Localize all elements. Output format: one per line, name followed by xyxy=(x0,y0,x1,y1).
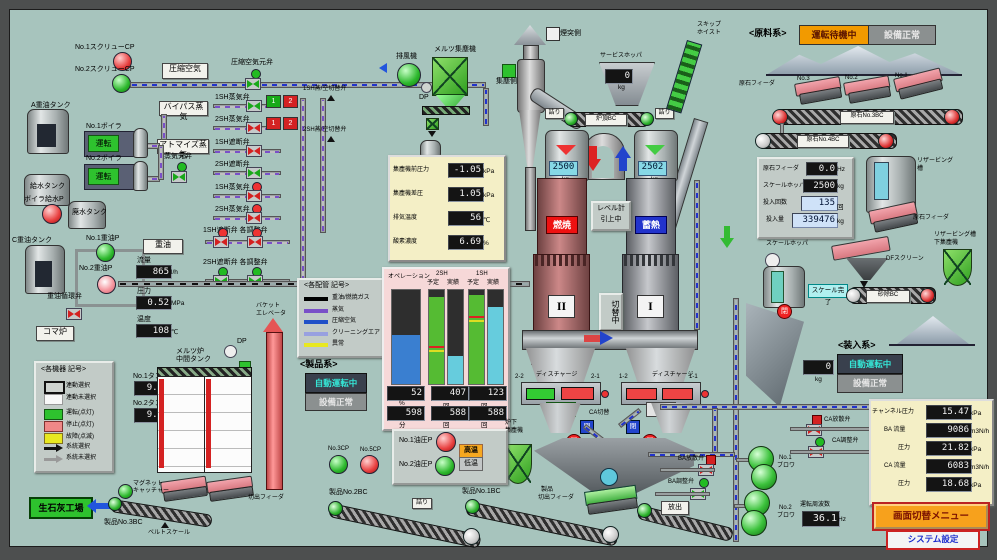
legend-nosys-arrow-head xyxy=(56,455,63,463)
skip-hoist-label1: スキップ xyxy=(697,22,721,29)
ba-adjust-valve-label: BA調整弁 xyxy=(668,479,694,486)
kiln2-number: II xyxy=(548,295,575,318)
pipe-legend-clean-swatch xyxy=(304,332,328,336)
charge-r4-label: 圧力 xyxy=(898,481,910,488)
legend-nosys-arrow xyxy=(44,458,56,461)
level-gauge-line2: 引上中 xyxy=(593,214,629,225)
sh1-switch-valve-label: 1SH蒸/空切替弁 xyxy=(303,86,346,93)
dust-r2-unit: ℃ xyxy=(483,216,490,224)
boiler1-run-status[interactable]: 運転 xyxy=(88,135,119,152)
legend-linked-label: 連動選択 xyxy=(66,383,90,390)
product-normal-status[interactable]: 設備正常 xyxy=(305,393,367,411)
kiln1-up-arrow-icon xyxy=(615,146,631,158)
charge-closed-indicator: 閉 xyxy=(777,304,792,319)
op-bottom-unit: 分 xyxy=(399,419,406,429)
product-cutout-pulley xyxy=(637,503,652,518)
product-bc2-pulley xyxy=(328,501,343,516)
oil-pump2-label: No.2重油P xyxy=(79,265,112,273)
freq-unit: Hz xyxy=(838,516,846,523)
raw-r0-label: 原石フィーダ xyxy=(763,166,799,173)
oil-press-unit: MPa xyxy=(171,300,184,307)
belt-scale-label: ベルトスケール xyxy=(148,530,190,537)
hyd-pump2-label: No.2油圧P xyxy=(399,461,432,469)
c-oil-tank-door xyxy=(35,261,52,287)
ca-release-pipe xyxy=(790,427,870,431)
pipe-legend-clean-label: クリーニングエア xyxy=(332,330,380,337)
charge-r4-unit: kPa xyxy=(970,482,981,489)
product-bc2-label: 製品No.2BC xyxy=(329,489,368,497)
oil-circ-valve-icon[interactable] xyxy=(66,308,82,320)
ca-switch-label: CA切替 xyxy=(589,410,609,417)
top-bc-label: 炉頂BC xyxy=(585,114,627,126)
ba-branch-pipe xyxy=(712,408,718,453)
screw-cp2-label: No.2スクリューCP xyxy=(75,66,135,74)
system-settings-button[interactable]: システム設定 xyxy=(886,530,980,550)
band-arrow-tail xyxy=(584,335,600,342)
dust-gate-valve[interactable] xyxy=(426,118,439,130)
service-hopper-label: サービスホッパ xyxy=(600,53,642,60)
op-top-value: 52 xyxy=(387,386,425,401)
level-gauge-line1: レベル計 xyxy=(593,203,629,214)
mid-tank2 xyxy=(157,376,205,473)
scale-hopper-level xyxy=(771,271,784,303)
oil-pump1-label: No.1重油P xyxy=(86,235,119,243)
sh1-top-value: 123 xyxy=(469,386,507,401)
ca-release-valve-label: CA放散弁 xyxy=(824,417,850,424)
pipe-legend-steam-swatch xyxy=(304,309,328,313)
hyd-pump1[interactable] xyxy=(436,432,456,452)
product-bc1-end-pulley xyxy=(602,526,619,543)
sh2-bottom-value: 588 xyxy=(431,406,469,421)
exhaust-fan-label: 排風機 xyxy=(396,53,417,61)
chart-col3-plan-label: 予定 xyxy=(467,280,479,287)
skip-hoist-label2: ホイスト xyxy=(697,30,721,37)
oil-flow-value: 865 xyxy=(136,265,172,279)
feed-pump-label: ボイラ給水P xyxy=(24,196,64,204)
dust-dp-sensor xyxy=(421,82,432,93)
dust-drop-arrow-icon xyxy=(428,131,436,137)
charge-stockpile-baseline xyxy=(889,344,975,346)
band-arrow-head-icon xyxy=(600,331,613,345)
sh2-switch-valve-label: 2SH蒸/空切替弁 xyxy=(303,127,346,134)
pipe-legend-steam-label: 蒸気 xyxy=(332,307,344,314)
sh2-act-bar xyxy=(447,289,464,385)
charge-auto-status[interactable]: 自動運転中 xyxy=(837,354,903,374)
dust-r1-unit: kPa xyxy=(483,192,494,199)
cutout-feeder-label: 切出フィーダ xyxy=(248,495,284,502)
mid-tank-title1: メルツ炉 xyxy=(176,348,204,356)
oil-circ-valve-label: 重油循環弁 xyxy=(47,293,82,301)
sh2-top-value: 407 xyxy=(431,386,469,401)
raw-r0-unit: Hz xyxy=(837,166,845,173)
valve-row5-label: 1SH蒸気弁 xyxy=(215,184,250,192)
dust-collector[interactable] xyxy=(432,57,468,96)
steam-pipe-v2 xyxy=(158,145,164,180)
dust-r2-label: 排気温度 xyxy=(393,215,417,222)
charge-r3-unit: m3N/h xyxy=(970,464,989,471)
magnet-catcher-label2: キャッチャー xyxy=(133,488,169,495)
top-bc-pulley-right xyxy=(640,112,654,126)
c-oil-tank-label: C重油タンク xyxy=(12,237,52,245)
atomize-steam-label: アトマイズ蒸気 xyxy=(157,139,209,154)
valve-row1-icon[interactable] xyxy=(246,100,262,112)
kiln1-mode-badge: 蓄熱 xyxy=(635,216,667,234)
service-hopper-weight: 0 xyxy=(605,69,633,84)
legend-linked-swatch xyxy=(44,381,65,394)
sand-bc-pulley-left xyxy=(846,288,861,303)
boiler2-drum xyxy=(133,161,148,191)
reserving-dust-label1: リザービング槽 xyxy=(934,232,976,239)
dust-r0-label: 集塵機前圧力 xyxy=(393,167,429,174)
skip-down-arrow-icon xyxy=(720,238,734,248)
raw-r2-label: 投入回数 xyxy=(763,200,787,207)
charge-r0-label: チャンネル圧力 xyxy=(872,409,914,416)
raw-r0-value: 0.0 xyxy=(806,162,838,176)
pos-12-label: 1-2 xyxy=(619,374,628,381)
mid-tank-title2: 中間タンク xyxy=(176,356,211,364)
pos-21-label: 2-1 xyxy=(591,374,600,381)
steam-riser2 xyxy=(320,98,326,233)
pipe-legend-air-swatch xyxy=(304,320,328,324)
raw-r1-unit: kg xyxy=(837,183,844,190)
dust-dp-label: DP xyxy=(419,94,429,102)
dust-r0-unit: kPa xyxy=(483,168,494,175)
kiln2-tuyeres xyxy=(535,255,586,266)
top-bc-jam-left: 詰り xyxy=(545,108,564,119)
valve-row1-badge1: 1 xyxy=(266,95,281,108)
rock-bc3-label: 原石No.3BC xyxy=(840,111,894,124)
kiln2-weight-value: 2500 xyxy=(549,161,578,176)
pipe-legend-oil-label: 重油/燃焼ガス xyxy=(332,295,370,302)
valve-row2-icon[interactable] xyxy=(246,122,262,134)
steam-pipe-v1 xyxy=(161,114,167,140)
kiln1-air-riser xyxy=(694,180,700,330)
dust-r3-label: 酸素濃度 xyxy=(393,239,417,246)
raw-system-title: <原料系> xyxy=(749,28,787,38)
kiln1-discharge-red-bar2 xyxy=(662,388,693,400)
sh1-bottom-unit: 回 xyxy=(481,419,488,429)
oil-temp-unit: ℃ xyxy=(171,328,178,336)
ba-adjust-pipe xyxy=(655,492,710,496)
legend-run-swatch xyxy=(44,409,63,420)
ba-release-valve-label: BA放散弁 xyxy=(678,456,704,463)
legend-sys-arrow xyxy=(44,447,56,450)
charge-r3-value: 6083 xyxy=(926,459,972,474)
dust-r1-value: 1.05 xyxy=(448,187,484,202)
scale-hopper-tank xyxy=(763,266,805,308)
legend-sys-arrow-head xyxy=(56,444,63,452)
kiln1-discharge-red-bar1 xyxy=(626,388,657,400)
under-dust-label1: 炉下 xyxy=(505,420,517,427)
screw-cp1-label: No.1スクリューCP xyxy=(75,44,135,52)
charge-r2-label: 圧力 xyxy=(898,445,910,452)
chart-col2-plan-label: 予定 xyxy=(427,280,439,287)
oil-press-label: 圧力 xyxy=(137,288,151,296)
legend-sys-label: 系統選択 xyxy=(66,444,90,451)
kiln1-number: I xyxy=(637,295,664,318)
raw-r3-label: 投入量 xyxy=(766,217,784,224)
kiln1-lower-body xyxy=(622,254,679,334)
up-arrow-icon xyxy=(327,95,335,101)
waste-tank-label: 廃水タンク xyxy=(72,209,107,217)
legend-unlinked-label: 連動未選択 xyxy=(66,395,96,402)
magnet-catcher[interactable] xyxy=(118,484,133,499)
product-system-title: <製品系> xyxy=(300,359,338,369)
oil-flow-unit: l/h xyxy=(171,269,178,276)
sh2-plan-bar xyxy=(428,289,445,385)
charge-r2-value: 21.82 xyxy=(926,441,972,456)
kiln1-up-arrow-shaft xyxy=(619,158,627,171)
kiln1-weight-value: 2502 xyxy=(638,161,667,176)
raw-r1-label: スケールホッパ xyxy=(763,183,805,190)
rock-bc4-label: 原石No.4BC xyxy=(797,135,849,148)
oil-pump2[interactable] xyxy=(97,275,116,294)
kiln2-discharge-green-bar xyxy=(526,388,555,400)
op-bottom-value: 598 xyxy=(387,406,425,421)
charge-weight-unit: kg xyxy=(815,376,822,383)
feedwater-tank-label: 給水タンク xyxy=(30,183,65,191)
cp3-label: No.3CP xyxy=(328,446,349,453)
top-bc-pulley-left xyxy=(564,112,578,126)
skip-down-arrow-shaft xyxy=(724,226,730,238)
scale-done-status: スケール完了 xyxy=(808,284,848,298)
ca-adjust-valve-label: CA調整弁 xyxy=(832,438,858,445)
boiler1-drum xyxy=(133,128,148,158)
df-screen-label: DFスクリーン xyxy=(886,256,924,263)
valve-row2-label: 2SH蒸気弁 xyxy=(215,116,250,124)
service-hopper-unit: kg xyxy=(618,84,625,91)
oil-pump1[interactable] xyxy=(96,243,115,262)
product-bc3-label: 製品No.3BC xyxy=(104,519,143,527)
valve-row1-label: 1SH蒸気弁 xyxy=(215,94,250,102)
oil-temp-value: 108 xyxy=(136,324,172,338)
rock-bc4-pulley-left xyxy=(755,133,771,149)
charge-r2-unit: kPa xyxy=(970,446,981,453)
kiln1-discharge-dot xyxy=(701,390,709,398)
charge-weight-value: 0 xyxy=(803,360,834,375)
compressed-air-pipe-drop xyxy=(483,88,489,126)
charge-r1-unit: m3N/h xyxy=(970,428,989,435)
steam-main-valve-label: 蒸気元弁 xyxy=(164,153,192,161)
valve-row7-icon1[interactable] xyxy=(213,236,229,248)
oil-press-value: 0.52 xyxy=(136,296,172,310)
blower2-label1: No.2 xyxy=(779,505,792,512)
valve-row8-label: 2SH遮断弁 各調整弁 xyxy=(203,259,268,267)
bucket-elevator[interactable] xyxy=(266,332,283,490)
raw-r2-value: 135 xyxy=(801,196,838,211)
oil-flow-label: 流量 xyxy=(137,257,151,265)
cp5-pump[interactable] xyxy=(360,455,379,474)
valve-row3-icon[interactable] xyxy=(246,145,262,157)
hyd-pump2[interactable] xyxy=(435,456,455,476)
operation-bar xyxy=(391,289,421,385)
bucket-elevator-label1: バケット xyxy=(256,303,280,310)
compressed-air-label: 圧縮空気 xyxy=(162,63,208,79)
valve-row6-icon[interactable] xyxy=(246,212,262,224)
cp3-pump[interactable] xyxy=(329,455,348,474)
freq-value: 36.1 xyxy=(802,511,840,527)
product-belt-jam: 詰り xyxy=(412,498,432,509)
screw-cp2-pump[interactable] xyxy=(112,74,131,93)
charge-r0-value: 15.47 xyxy=(926,405,972,420)
boiler1-label: No.1ボイラ xyxy=(86,123,122,131)
freq-label: 運転周波数 xyxy=(800,502,830,509)
legend-unlinked-swatch xyxy=(44,394,63,405)
legend-fault-label: 故障(点滅) xyxy=(66,434,94,441)
valve-row4-icon[interactable] xyxy=(246,167,262,179)
rock-feeders-label: 原石フィーダ xyxy=(739,81,775,88)
chimney-side-label: 煙突側 xyxy=(560,30,581,38)
ba-release-pipe xyxy=(660,468,715,472)
charge-r4-value: 18.68 xyxy=(926,477,972,492)
charge-normal-status[interactable]: 設備正常 xyxy=(837,374,903,393)
kiln2-lower-body xyxy=(533,254,590,334)
blower2-label2: ブロワ xyxy=(777,513,795,520)
up-arrow-icon xyxy=(327,136,335,142)
under-dust-collector[interactable] xyxy=(504,444,532,484)
heavy-oil-label: 重油 xyxy=(143,239,183,254)
ca-header-pipe xyxy=(660,404,872,410)
reserving-tank-label1: リザービング xyxy=(917,158,953,165)
charge-r1-value: 9086 xyxy=(926,423,972,438)
reserving-dust-collector[interactable] xyxy=(943,249,972,286)
scale-hopper-label: スケールホッパ xyxy=(766,241,808,248)
kiln1-discharge-label: ディスチャージ xyxy=(652,372,693,379)
steam-main-valve-icon[interactable] xyxy=(171,171,187,183)
screen-menu-button[interactable]: 画面切替メニュー xyxy=(874,504,988,529)
ca-adjust-pipe xyxy=(790,450,870,454)
valve-row6-label: 2SH蒸気弁 xyxy=(215,206,250,214)
kiln2-down-arrow-shaft xyxy=(589,146,597,159)
magnet-catcher-label1: マグネット xyxy=(133,481,163,488)
charge-r1-label: BA 流量 xyxy=(884,427,905,434)
raw-r3-unit: kg xyxy=(837,218,844,225)
window-frame: No.1スクリューCP No.2スクリューCP 圧縮空気 圧縮空気元弁 バイパス… xyxy=(0,0,997,560)
comp-air-valve-label: 圧縮空気元弁 xyxy=(231,59,273,67)
chart-col2-act-label: 実績 xyxy=(447,280,459,287)
chart-col3-act-label: 実績 xyxy=(487,280,499,287)
sand-bc-pulley-right xyxy=(920,288,935,303)
chart-col2-title: 2SH xyxy=(436,271,448,278)
boiler-feed-pump[interactable] xyxy=(42,204,62,224)
kiln2-discharge-dot xyxy=(601,390,609,398)
valve-row5-icon[interactable] xyxy=(246,190,262,202)
valve-row1-badge2: 2 xyxy=(283,95,298,108)
mixing-hopper-outlet xyxy=(600,468,618,486)
raw-r3-value: 339476 xyxy=(792,213,838,228)
to-factory-arrow-icon xyxy=(87,499,96,513)
release-label: 放出 xyxy=(661,501,689,515)
comp-air-valve-icon[interactable] xyxy=(245,78,261,90)
kiln2-discharge-red-bar xyxy=(561,387,594,400)
switching-status: 切替中 xyxy=(599,293,623,331)
belt-scale-icon xyxy=(161,522,169,528)
exhaust-arrow-icon xyxy=(379,63,387,73)
kiln2-discharge-label: ディスチャージ xyxy=(536,372,577,379)
legend-run-label: 運転(点灯) xyxy=(66,410,94,417)
blower1-label2: ブロワ xyxy=(777,463,795,470)
valve-row2-badge1: 1 xyxy=(266,117,281,130)
valve-row3-label: 1SH遮断弁 xyxy=(215,139,250,147)
mid-tank1-level-bar xyxy=(206,379,211,468)
dust-r3-value: 6.69 xyxy=(448,235,484,250)
reserving-feeder-label: 原石フィーダ xyxy=(913,215,949,222)
product-feeder-label2: 切出フィーダ xyxy=(538,495,574,502)
charge-r3-label: CA 流量 xyxy=(884,463,906,470)
sand-bc-label: 砂除BC xyxy=(866,290,910,303)
pipe-legend-fault-label: 異常 xyxy=(332,341,344,348)
valve-row2-badge2: 2 xyxy=(283,117,298,130)
legend-nosys-label: 系統未選択 xyxy=(66,455,96,462)
hyd-pump1-label: No.1油圧P xyxy=(399,437,432,445)
product-bc2-end-pulley xyxy=(463,528,480,545)
legend-fault-swatch xyxy=(44,433,63,444)
exhaust-fan[interactable] xyxy=(397,63,421,87)
sh2-bottom-unit: 回 xyxy=(443,419,450,429)
mid-tank2-level-bar xyxy=(159,379,164,468)
dust-collector-grate xyxy=(422,106,470,115)
ba-adjust-valve-status xyxy=(699,478,709,488)
lime-factory-label: 生石灰工場 xyxy=(29,497,93,519)
blower1-fan-b[interactable] xyxy=(751,464,777,490)
pipe-legend-air-label: 圧縮空気 xyxy=(332,318,356,325)
blower2-fan-b[interactable] xyxy=(741,510,767,536)
charge-r0-unit: kPa xyxy=(970,410,981,417)
bucket-elevator-label2: エレベータ xyxy=(256,311,286,318)
rock-bc3-pulley-right xyxy=(944,109,960,125)
kiln2-mode-badge: 燃焼 xyxy=(546,216,578,234)
dust-collector-label: メルツ集塵機 xyxy=(434,46,476,54)
pipe-legend-oil-swatch xyxy=(304,297,328,301)
collect-side-label: 集塵側 xyxy=(496,78,517,86)
a-oil-tank-door xyxy=(37,124,56,147)
mid-dp-sensor xyxy=(224,345,237,358)
legend-stop-label: 停止(点灯) xyxy=(66,422,94,429)
cp5-label: No.5CP xyxy=(360,447,381,454)
raw-r1-value: 2500 xyxy=(803,179,838,193)
pos-11-label: 1-1 xyxy=(689,374,698,381)
valve-row7-icon2[interactable] xyxy=(247,236,263,248)
reserving-dust-label2: 下集塵機 xyxy=(934,240,958,247)
koma-furnace-label: コマ炉 xyxy=(36,326,74,341)
rock-bc4-pulley-right xyxy=(878,133,894,149)
sh1-bottom-value: 588 xyxy=(469,406,507,421)
low-temp-status: 低温 xyxy=(459,457,483,471)
pipe-legend-fault-swatch xyxy=(304,343,328,347)
dust-r0-value: -1.05 xyxy=(448,163,484,178)
dust-r3-unit: % xyxy=(483,240,489,247)
chart-col1-title: オペレーション xyxy=(388,274,430,281)
product-bc1-label: 製品No.1BC xyxy=(462,488,501,496)
product-bc1-pulley xyxy=(465,499,480,514)
collect-side-indicator xyxy=(502,64,516,78)
raw-standby-status[interactable]: 運転待機中 xyxy=(799,25,869,45)
pos-22-label: 2-2 xyxy=(515,374,524,381)
valve-row4-label: 2SH遮断弁 xyxy=(215,161,250,169)
equipment-legend-title: <各機器 記号> xyxy=(41,366,86,374)
pipe-legend-title: <各配管 記号> xyxy=(304,282,349,290)
product-auto-status[interactable]: 自動運転中 xyxy=(305,373,367,393)
level-gauge-status: レベル計引上中 xyxy=(591,201,631,231)
raw-r2-unit: 回 xyxy=(837,201,844,211)
raw-normal-status[interactable]: 設備正常 xyxy=(868,25,936,45)
oil-temp-label: 温度 xyxy=(137,316,151,324)
boiler2-run-status[interactable]: 運転 xyxy=(88,168,119,185)
sh1-plan-bar xyxy=(468,289,485,385)
mid-tank1 xyxy=(204,376,252,473)
reserving-tank-level xyxy=(874,162,889,200)
high-temp-status: 高温 xyxy=(459,444,483,458)
